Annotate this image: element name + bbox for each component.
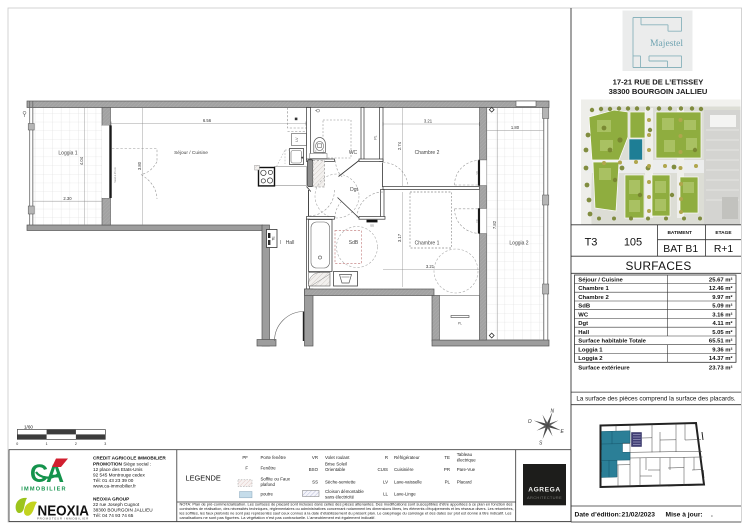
svg-text:Tableau: Tableau — [457, 452, 473, 457]
svg-text:Cuisinière: Cuisinière — [394, 467, 414, 472]
svg-text:BATIMENT: BATIMENT — [667, 230, 691, 236]
svg-text:canalisations ne sont pas figu: canalisations ne sont pas figurées. La v… — [180, 516, 376, 520]
svg-text:électrique: électrique — [457, 458, 477, 463]
svg-text:O: O — [528, 419, 532, 425]
svg-text:PR: PR — [444, 467, 450, 472]
svg-text:Chambre 1: Chambre 1 — [415, 241, 440, 247]
svg-text:3.21: 3.21 — [426, 264, 435, 269]
svg-text:R+1: R+1 — [714, 244, 734, 255]
svg-text:Tél: 04 74 93 74 65: Tél: 04 74 93 74 65 — [93, 513, 134, 518]
svg-text:SURFACES: SURFACES — [626, 259, 692, 273]
svg-text:1.80: 1.80 — [511, 125, 520, 130]
svg-text:12 place des Etats-Unis: 12 place des Etats-Unis — [93, 467, 143, 472]
svg-text:SdB: SdB — [578, 304, 590, 310]
svg-text:9.36 m²: 9.36 m² — [712, 346, 732, 353]
svg-text:9.97 m²: 9.97 m² — [712, 294, 732, 301]
svg-text:Loggia 2: Loggia 2 — [578, 356, 603, 362]
svg-text:TE: TE — [272, 236, 276, 241]
svg-text:Fenêtre: Fenêtre — [261, 465, 277, 470]
svg-text:Séjour / Cuisine: Séjour / Cuisine — [578, 277, 623, 283]
svg-text:0: 0 — [16, 442, 18, 446]
svg-text:2.30: 2.30 — [63, 196, 72, 201]
svg-text:Lave-Linge: Lave-Linge — [394, 492, 416, 497]
svg-text:105: 105 — [624, 237, 642, 249]
svg-text:Chambre 1: Chambre 1 — [578, 286, 609, 292]
svg-text:IMMOBILIER: IMMOBILIER — [21, 487, 67, 493]
svg-text:AGREGA: AGREGA — [528, 487, 561, 494]
svg-text:7.82: 7.82 — [492, 220, 497, 229]
svg-text:Réfrigérateur: Réfrigérateur — [394, 455, 420, 460]
svg-text:PF: PF — [242, 455, 248, 460]
svg-text:Loggia 1: Loggia 1 — [578, 347, 603, 353]
svg-text:1/60: 1/60 — [24, 425, 33, 430]
svg-text:poutre: poutre — [261, 492, 274, 497]
svg-text:Seuil à 25 cm: Seuil à 25 cm — [113, 167, 117, 183]
svg-text:LV: LV — [295, 137, 299, 142]
svg-text:2.74: 2.74 — [397, 141, 402, 150]
svg-text:65.51 m²: 65.51 m² — [709, 338, 733, 345]
svg-text:Majestel: Majestel — [650, 38, 683, 49]
svg-text:3.80: 3.80 — [137, 161, 142, 170]
svg-text:les soffites, les faux plafond: les soffites, les faux plafonds ne sont … — [180, 511, 512, 515]
svg-text:ETAGE: ETAGE — [715, 230, 732, 236]
svg-text:sans électricité: sans électricité — [325, 495, 355, 500]
svg-text:SS: SS — [370, 224, 374, 228]
svg-text:La surface des pièces comprend: La surface des pièces comprend la surfac… — [576, 396, 736, 403]
svg-text:PL: PL — [458, 322, 462, 326]
svg-text:NEOXIA GROUP: NEOXIA GROUP — [93, 497, 129, 502]
svg-text:LV: LV — [383, 479, 388, 484]
svg-text:PROMOTEUR IMMOBILIER: PROMOTEUR IMMOBILIER — [37, 517, 89, 521]
svg-text:12.46 m²: 12.46 m² — [709, 285, 733, 292]
svg-text:3.21: 3.21 — [424, 118, 433, 123]
svg-text:38300 BOURGOIN JALLIEU: 38300 BOURGOIN JALLIEU — [609, 87, 708, 96]
svg-text:Brise Soleil: Brise Soleil — [325, 462, 347, 467]
svg-text:3: 3 — [104, 442, 106, 446]
svg-text:4.04: 4.04 — [79, 156, 84, 165]
svg-text:Loggia 1: Loggia 1 — [58, 151, 77, 157]
svg-text:PL: PL — [445, 479, 451, 484]
svg-text:Séjour / Cuisine: Séjour / Cuisine — [174, 150, 208, 156]
svg-text:www.ca-immobilier.fr: www.ca-immobilier.fr — [93, 484, 136, 489]
svg-text:Surface extérieure: Surface extérieure — [578, 365, 630, 371]
svg-text:Date d’édition:: Date d’édition: — [575, 512, 621, 519]
svg-text:5.09 m²: 5.09 m² — [712, 303, 732, 310]
svg-text:TE: TE — [444, 455, 450, 460]
svg-text:LEGENDE: LEGENDE — [186, 474, 221, 483]
svg-text:Orientable: Orientable — [325, 467, 346, 472]
svg-text:92 545 Montrouge cedex: 92 545 Montrouge cedex — [93, 473, 146, 478]
svg-text:Dgt: Dgt — [350, 187, 358, 193]
svg-text:R: R — [385, 455, 388, 460]
svg-text:6.56: 6.56 — [203, 118, 212, 123]
svg-text:3.17: 3.17 — [397, 233, 402, 242]
svg-text:T3: T3 — [585, 237, 598, 249]
svg-text:Soffite ou Faux: Soffite ou Faux — [261, 477, 291, 482]
svg-text:Hall: Hall — [286, 240, 295, 246]
svg-text:VR: VR — [475, 219, 479, 223]
svg-text:17-21 RUE DE L’ETISSEY: 17-21 RUE DE L’ETISSEY — [613, 78, 704, 87]
svg-text:plafond: plafond — [261, 482, 276, 487]
svg-text:38300 BOURGOIN JALLIEU: 38300 BOURGOIN JALLIEU — [93, 508, 153, 513]
svg-text:NOTA: Plan de pré-commercialis: NOTA: Plan de pré-commercialisation. Les… — [180, 502, 513, 506]
svg-text:Lave-vaisselle: Lave-vaisselle — [394, 479, 422, 484]
svg-text:1: 1 — [46, 442, 48, 446]
svg-text:WC: WC — [349, 150, 358, 156]
svg-text:PL: PL — [374, 135, 378, 139]
svg-text:F: F — [245, 465, 248, 470]
svg-text:Surface habitable Totale: Surface habitable Totale — [578, 339, 646, 345]
svg-text:PROMOTION Siège social :: PROMOTION Siège social : — [93, 461, 151, 466]
svg-text:BAT B1: BAT B1 — [663, 244, 698, 255]
svg-text:14.37 m²: 14.37 m² — [709, 355, 733, 362]
svg-text:Cloison démontable: Cloison démontable — [325, 489, 364, 494]
svg-text:23.73 m²: 23.73 m² — [709, 364, 733, 371]
svg-text:4.11 m²: 4.11 m² — [713, 320, 733, 327]
svg-text:Placard: Placard — [457, 479, 472, 484]
svg-text:.: . — [711, 512, 713, 519]
svg-text:2: 2 — [75, 442, 77, 446]
svg-text:Porte fenêtre: Porte fenêtre — [261, 455, 287, 460]
svg-text:LL: LL — [383, 492, 388, 497]
svg-text:Mise à jour:: Mise à jour: — [666, 512, 703, 519]
svg-text:contraintes de réalisation, de: contraintes de réalisation, des nécessit… — [180, 507, 514, 511]
svg-text:VR: VR — [475, 171, 479, 175]
svg-text:3.16 m²: 3.16 m² — [712, 311, 732, 318]
svg-text:N: N — [551, 409, 555, 415]
svg-text:WC: WC — [578, 312, 589, 318]
svg-text:CUIS: CUIS — [378, 467, 389, 472]
svg-text:Chambre 2: Chambre 2 — [415, 150, 440, 156]
svg-text:Tél: 01 43 23 39 00: Tél: 01 43 23 39 00 — [93, 478, 134, 483]
svg-text:Hall: Hall — [578, 330, 589, 336]
svg-text:CREDIT AGRICOLE IMMOBILIER: CREDIT AGRICOLE IMMOBILIER — [93, 456, 166, 461]
svg-text:SdB: SdB — [349, 240, 359, 246]
svg-text:Pare-Vue: Pare-Vue — [457, 467, 476, 472]
svg-text:SS: SS — [312, 479, 318, 484]
svg-text:21/02/2023: 21/02/2023 — [622, 512, 656, 519]
svg-text:ARCHITECTURE: ARCHITECTURE — [527, 495, 562, 500]
svg-text:BSO: BSO — [309, 467, 319, 472]
svg-text:Loggia 2: Loggia 2 — [509, 241, 528, 247]
svg-text:Sèche-serviette: Sèche-serviette — [325, 479, 356, 484]
svg-text:VR: VR — [312, 455, 318, 460]
svg-text:Chambre 2: Chambre 2 — [578, 295, 609, 301]
svg-text:25.67 m²: 25.67 m² — [709, 276, 733, 283]
svg-text:Dgt: Dgt — [578, 321, 588, 327]
svg-text:Volet roulant: Volet roulant — [325, 455, 350, 460]
svg-text:22 rue Joseph Cugnot: 22 rue Joseph Cugnot — [93, 502, 140, 507]
svg-text:5.05 m²: 5.05 m² — [712, 329, 732, 336]
